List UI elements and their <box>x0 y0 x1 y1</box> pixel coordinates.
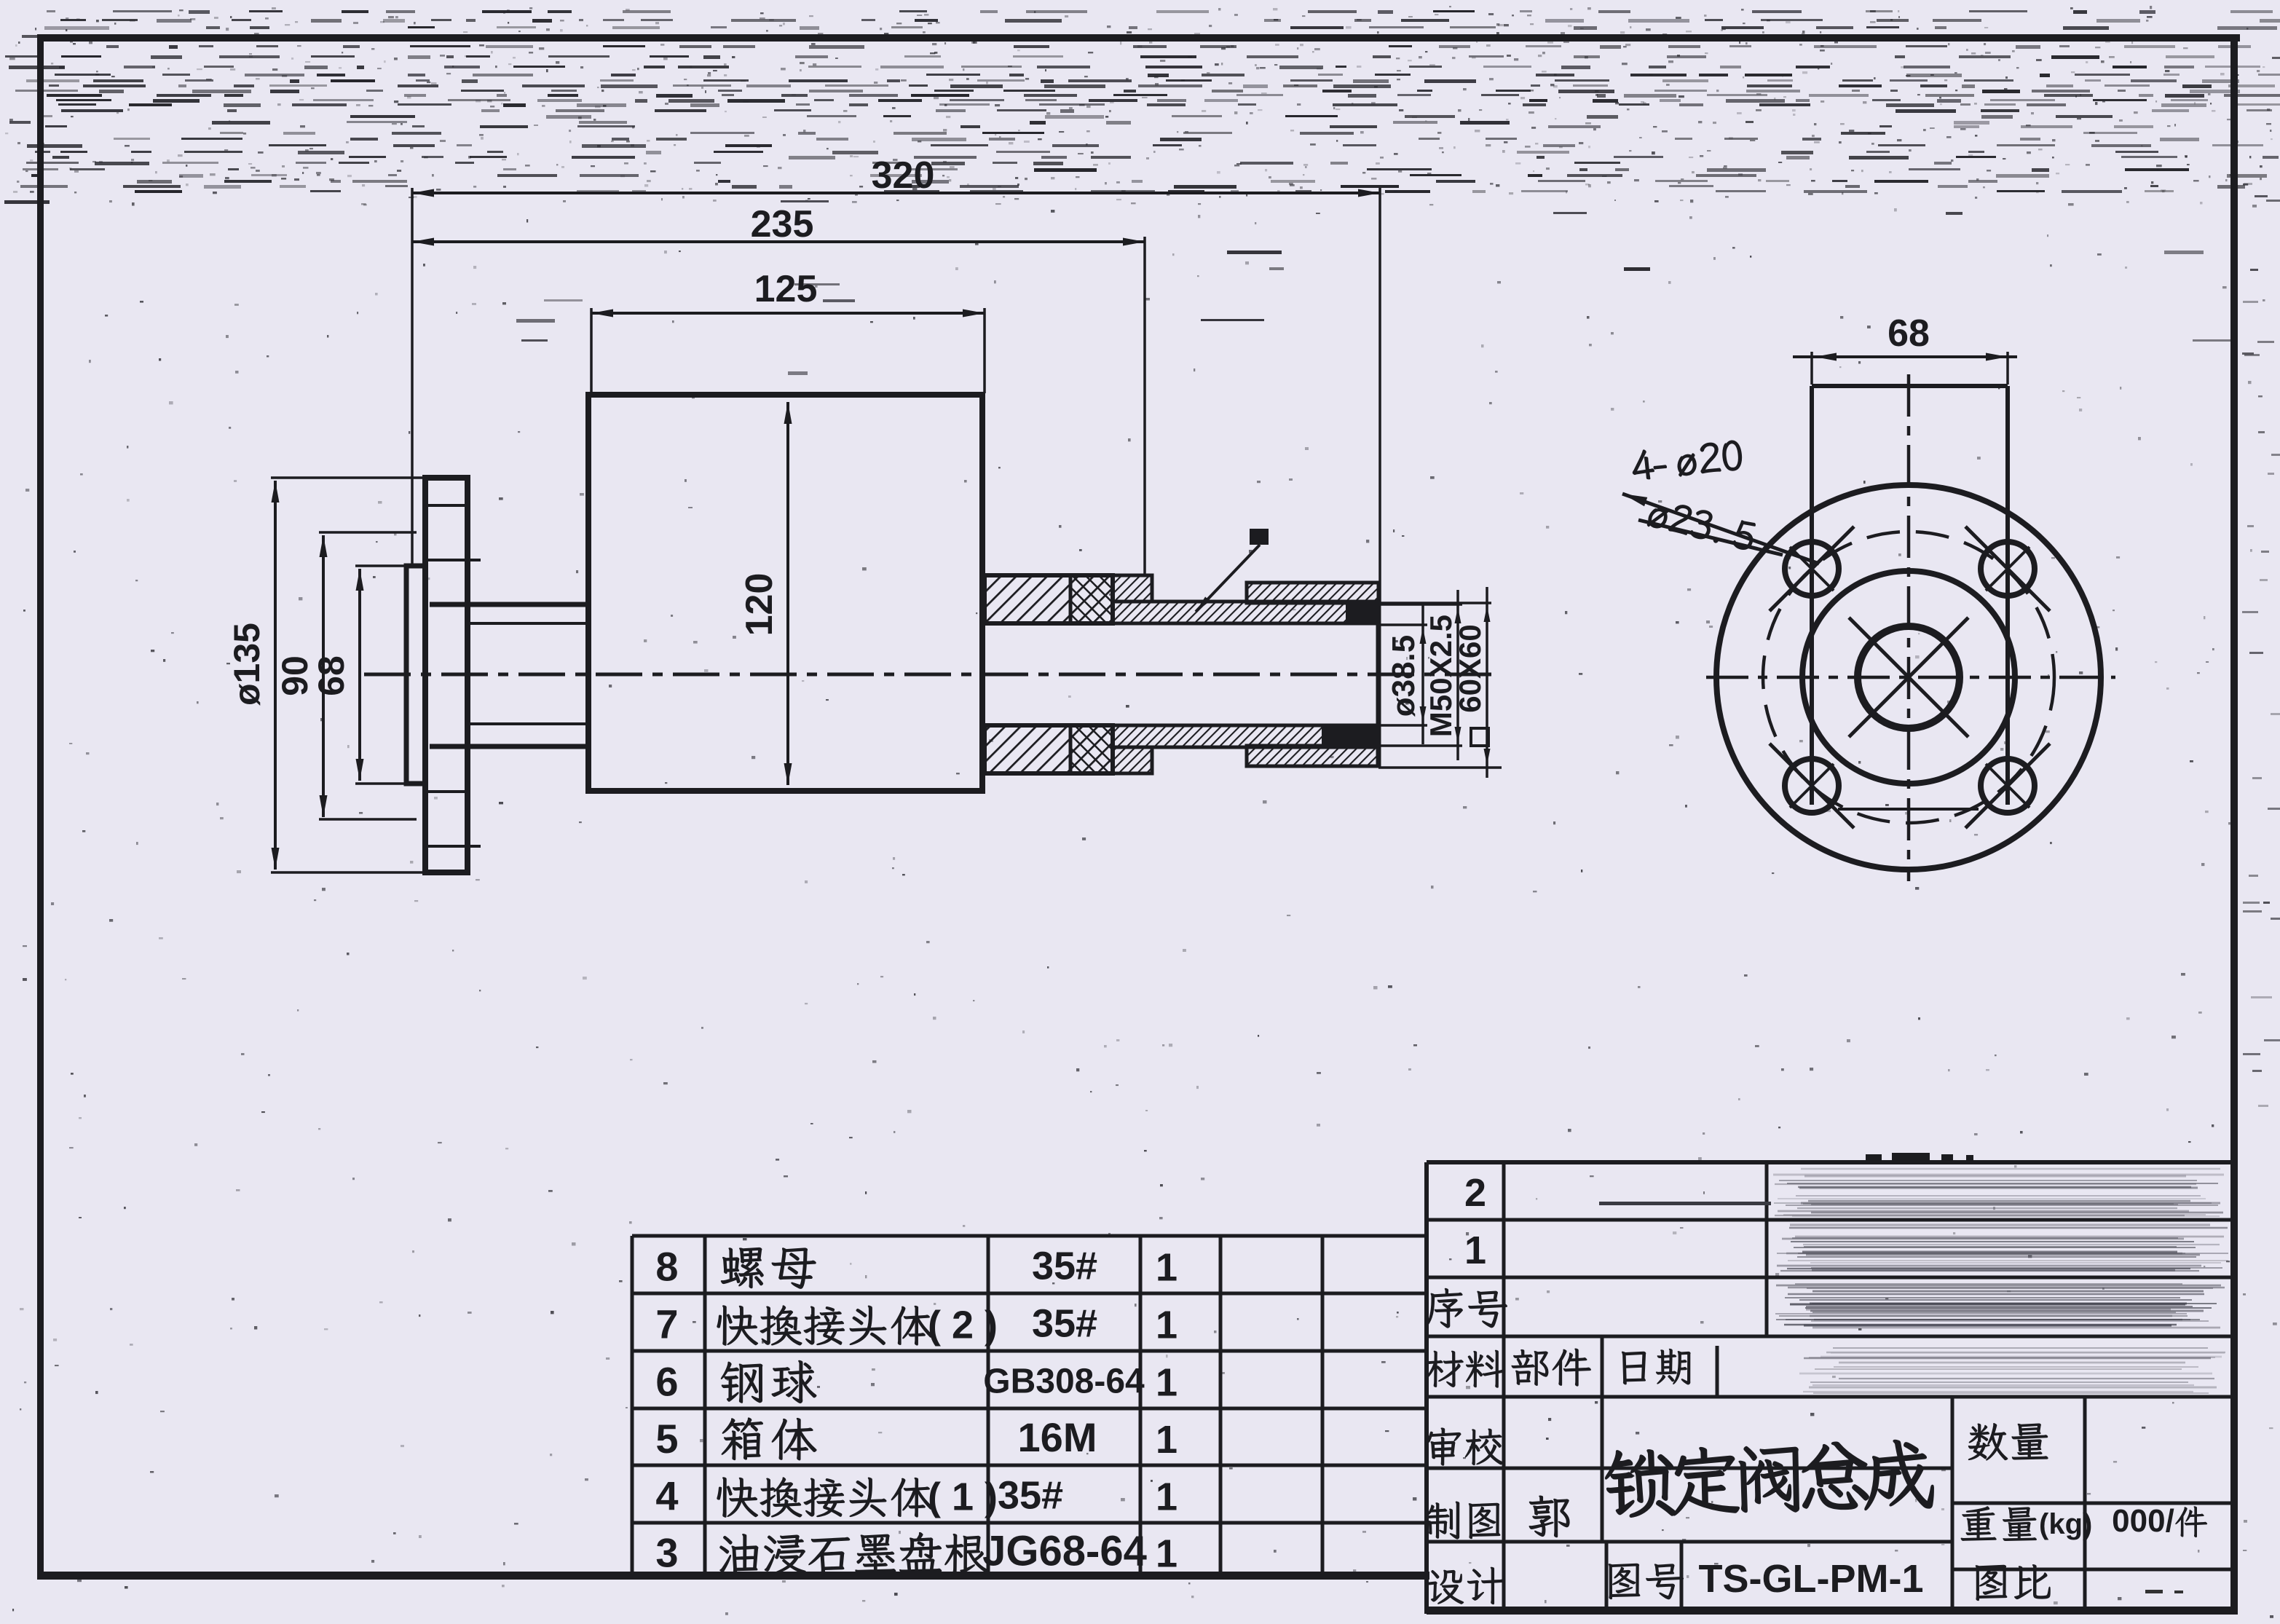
svg-text:6: 6 <box>655 1359 678 1405</box>
svg-text:JG68-64: JG68-64 <box>982 1528 1147 1575</box>
svg-text:ø135: ø135 <box>226 623 267 706</box>
svg-text:235: 235 <box>751 203 814 245</box>
svg-text:35#: 35# <box>1032 1245 1097 1288</box>
svg-text:16M: 16M <box>1018 1414 1097 1460</box>
svg-text:7: 7 <box>655 1301 678 1347</box>
svg-text:1: 1 <box>1156 1246 1178 1290</box>
svg-text:5: 5 <box>655 1416 678 1462</box>
svg-text:35#: 35# <box>998 1474 1063 1518</box>
svg-text:GB308-64: GB308-64 <box>983 1363 1145 1401</box>
svg-text:( 2 ): ( 2 ) <box>928 1304 998 1347</box>
svg-text:3: 3 <box>655 1530 678 1576</box>
svg-text:1: 1 <box>1156 1304 1178 1347</box>
svg-text:60X60: 60X60 <box>1453 624 1487 712</box>
svg-text:4: 4 <box>655 1473 678 1519</box>
svg-text:1: 1 <box>1156 1475 1178 1519</box>
svg-text:( 1 ): ( 1 ) <box>928 1475 998 1519</box>
svg-text:ø38.5: ø38.5 <box>1386 635 1421 717</box>
svg-text:320: 320 <box>872 154 935 197</box>
svg-text:2: 2 <box>1464 1171 1486 1215</box>
svg-text:1: 1 <box>1156 1418 1178 1462</box>
svg-text:1: 1 <box>1464 1229 1486 1272</box>
svg-text:1: 1 <box>1156 1532 1178 1576</box>
svg-text:1: 1 <box>1156 1361 1178 1405</box>
svg-text:8: 8 <box>655 1244 678 1290</box>
svg-text:90: 90 <box>275 655 315 696</box>
svg-text:TS-GL-PM-1: TS-GL-PM-1 <box>1699 1557 1924 1601</box>
svg-text:68: 68 <box>1887 312 1930 355</box>
svg-text:68: 68 <box>311 655 352 696</box>
svg-text:125: 125 <box>754 268 818 310</box>
svg-text:35#: 35# <box>1032 1302 1097 1346</box>
svg-text:120: 120 <box>738 573 781 636</box>
svg-text:000/: 000/ <box>2112 1503 2174 1539</box>
svg-text:(kg): (kg) <box>2039 1508 2092 1540</box>
